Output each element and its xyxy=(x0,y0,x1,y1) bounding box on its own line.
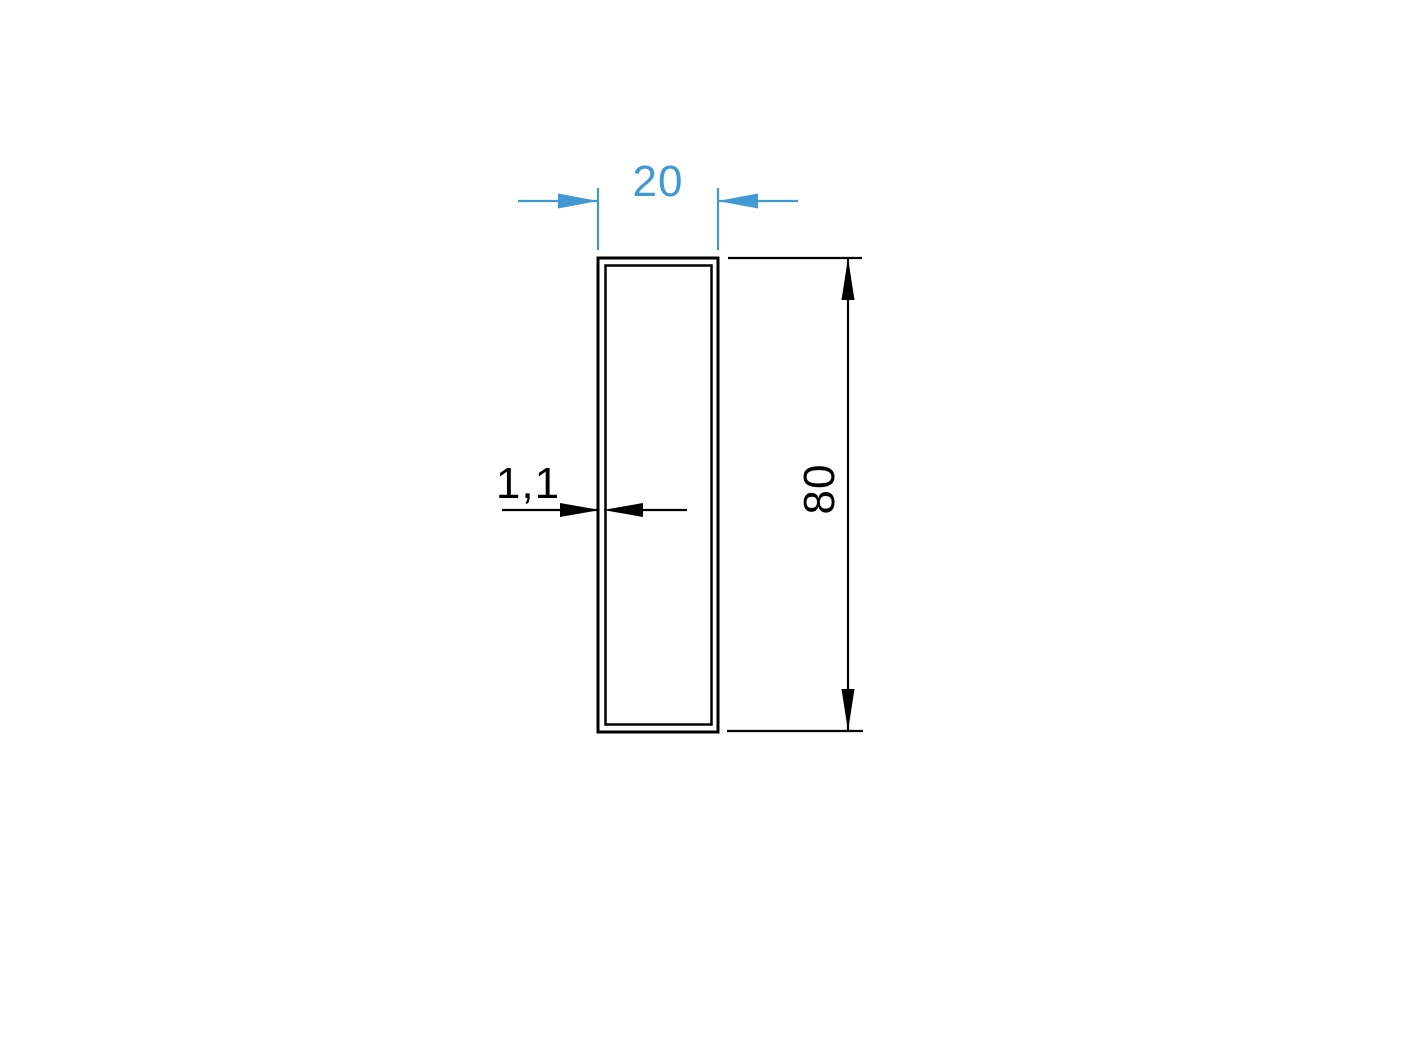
height-dimension: 80 xyxy=(727,258,863,731)
height-arrow-up-icon xyxy=(842,258,855,300)
wall-thickness-dimension: 1,1 xyxy=(496,459,687,517)
wall-thickness-label: 1,1 xyxy=(496,459,560,508)
width-arrow-right-icon xyxy=(718,194,758,209)
width-dimension: 20 xyxy=(518,157,798,250)
height-arrow-down-icon xyxy=(842,689,855,731)
profile-drawing-svg: 20 80 1,1 xyxy=(0,0,1417,1062)
technical-drawing-canvas: 20 80 1,1 xyxy=(0,0,1417,1062)
profile-outer-rect xyxy=(598,258,718,732)
wall-thickness-arrow-right-icon xyxy=(560,503,600,517)
tube-profile xyxy=(598,258,718,732)
width-dimension-label: 20 xyxy=(633,157,684,206)
width-arrow-left-icon xyxy=(558,194,598,209)
height-dimension-label: 80 xyxy=(795,464,844,515)
profile-inner-rect xyxy=(606,266,712,725)
wall-thickness-arrow-left-icon xyxy=(603,503,643,517)
